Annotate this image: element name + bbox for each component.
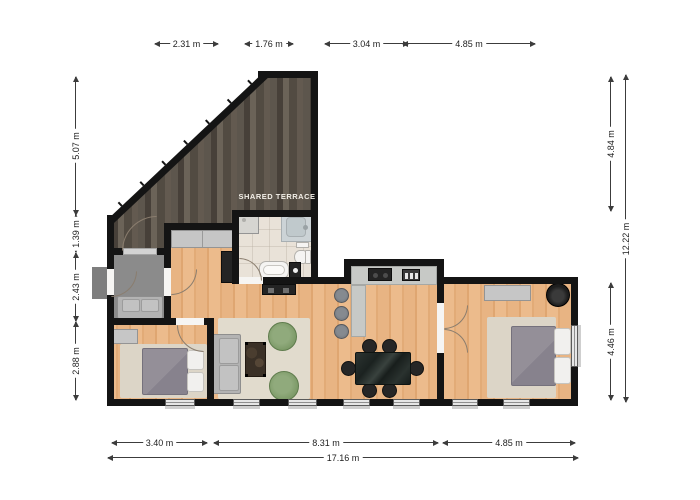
armchair (268, 322, 297, 351)
wall (232, 210, 239, 284)
wall (437, 284, 444, 303)
wall (164, 223, 238, 230)
dimension-left-1: 5.07 m (75, 77, 76, 215)
dimension-label: 4.46 m (606, 325, 616, 359)
wall (344, 259, 444, 266)
bar-counter (351, 285, 366, 337)
entry-stoop (92, 267, 107, 299)
bar-stool (334, 288, 349, 303)
dimension-label: 3.04 m (350, 39, 384, 49)
window (503, 399, 530, 406)
wall (437, 353, 444, 406)
wall (437, 277, 578, 284)
window (288, 399, 317, 406)
hallway-wardrobe (171, 230, 233, 248)
window (343, 399, 370, 406)
dining-chair (409, 361, 424, 376)
dimension-label: 2.88 m (71, 344, 81, 378)
kitchen-counter (351, 266, 437, 285)
towel-shelf (296, 242, 309, 248)
door-opening (164, 268, 171, 296)
bed-duvet (142, 348, 188, 395)
bed-pillow (554, 357, 571, 384)
window (393, 399, 420, 406)
dimension-bottom-2: 8.31 m (214, 442, 438, 443)
dimension-label: 4.84 m (606, 127, 616, 161)
dimension-bottom-total: 17.16 m (108, 457, 578, 458)
bed-pillow (187, 372, 204, 392)
dining-table (355, 352, 411, 385)
door-opening (176, 318, 204, 325)
wall (232, 277, 239, 284)
bench-cushion (122, 299, 140, 312)
dimension-top-1: 2.31 m (155, 43, 218, 44)
dimension-label: 1.76 m (252, 39, 286, 49)
window-sill (452, 406, 478, 409)
sofa-cushion (219, 338, 239, 364)
dimension-top-3: 3.04 m (325, 43, 408, 44)
window (452, 399, 478, 406)
window-sill (165, 406, 195, 409)
dimension-label: 2.31 m (170, 39, 204, 49)
window-sill (578, 325, 581, 367)
dresser (484, 285, 531, 301)
dimension-left-2: 1.39 m (75, 215, 76, 252)
dimension-bottom-3: 4.85 m (443, 442, 575, 443)
dimension-right-total: 12.22 m (625, 75, 626, 402)
window (571, 325, 578, 367)
dimension-right-2: 4.46 m (610, 283, 611, 400)
window (233, 399, 260, 406)
dimension-label: 4.85 m (492, 438, 526, 448)
wall (232, 210, 318, 217)
dimension-top-2: 1.76 m (245, 43, 293, 44)
kitchen-lower-counter (262, 284, 296, 295)
cooktop (368, 268, 392, 281)
armchair (269, 371, 299, 401)
dimension-label: 1.39 m (71, 217, 81, 251)
wall (207, 318, 214, 406)
dining-chair (341, 361, 356, 376)
window-sill (343, 406, 370, 409)
dimension-label: 8.31 m (309, 438, 343, 448)
window-sill (503, 406, 530, 409)
dimension-label: 3.40 m (143, 438, 177, 448)
bed-pillow (187, 350, 204, 370)
dimension-right-1: 4.84 m (610, 77, 611, 211)
dining-chair (382, 383, 397, 398)
dimension-top-4: 4.85 m (403, 43, 535, 44)
bar-stool (334, 324, 349, 339)
window-sill (393, 406, 420, 409)
dimension-label: 12.22 m (621, 219, 631, 258)
dimension-left-3: 2.43 m (75, 253, 76, 321)
dimension-bottom-1: 3.40 m (112, 442, 207, 443)
wall (263, 277, 318, 284)
terrace-label: SHARED TERRACE (238, 192, 316, 201)
door-opening (437, 303, 444, 353)
dimension-left-4: 2.88 m (75, 322, 76, 400)
window-sill (233, 406, 260, 409)
bed-pillow (554, 328, 571, 355)
kitchen-sink (402, 269, 420, 281)
dimension-label: 2.43 m (71, 270, 81, 304)
bar-stool (334, 306, 349, 321)
wall (258, 71, 318, 78)
wall (107, 318, 176, 325)
wall (107, 215, 114, 406)
wall (107, 248, 123, 255)
round-chair (546, 283, 570, 307)
window-sill (288, 406, 317, 409)
bed-duvet (511, 326, 556, 386)
dimension-label: 5.07 m (71, 129, 81, 163)
bench-cushion (141, 299, 159, 312)
floorplan-canvas: SHARED TERRACE 2.31 m 1.76 m 3.04 m 4.85… (0, 0, 700, 500)
sofa-cushion (219, 365, 239, 391)
window (165, 399, 195, 406)
dimension-label: 4.85 m (452, 39, 486, 49)
washing-machine (238, 214, 259, 234)
dimension-label: 17.16 m (324, 453, 363, 463)
sofa (212, 334, 241, 394)
entry-bench (117, 296, 163, 319)
wall (311, 71, 318, 284)
coffee-table (245, 342, 266, 377)
dresser (112, 329, 138, 344)
dining-chair (362, 383, 377, 398)
